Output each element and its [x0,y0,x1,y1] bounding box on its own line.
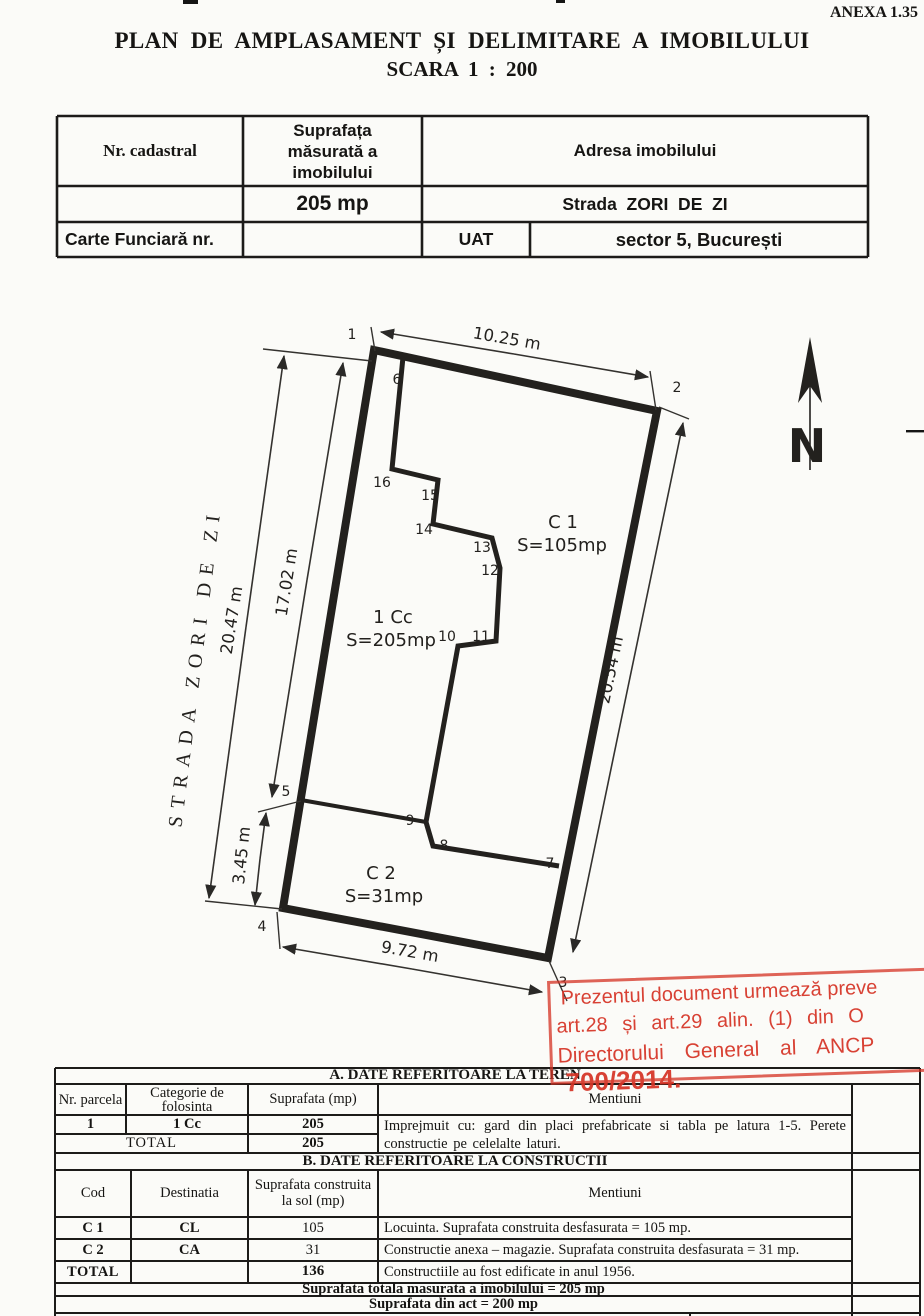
teren-header-categorie: Categorie de folosinta [126,1085,248,1114]
area-c1-value: S=105mp [517,535,607,556]
info-suprafata-label: Suprafața măsurată a imobilului [243,116,422,186]
anexa-label: ANEXA 1.35 [770,4,918,22]
constructii-header-mentiuni: Mentiuni [378,1170,852,1217]
page-title: PLAN DE AMPLASAMENT ȘI DELIMITARE A IMOB… [0,28,924,54]
teren-header-nr-parcela: Nr. parcela [55,1085,126,1114]
dim-17-02: 17.02 m [272,547,301,618]
point-label-13: 13 [473,540,491,556]
area-c1-code: C 1 [548,512,578,533]
area-1cc-value: S=205mp [346,630,436,651]
teren-row-nr: 1 [55,1115,126,1134]
point-label-9: 9 [406,813,415,829]
constructii-header-destinatia: Destinatia [131,1170,248,1217]
point-label-14: 14 [415,522,433,538]
building-c1-outline [392,357,559,866]
teren-total-label: TOTAL [55,1134,248,1153]
constructii-r1-supr: 105 [248,1217,378,1239]
area-c2-value: S=31mp [345,886,423,907]
area-c2-code: C 2 [366,863,396,884]
point-label-2: 2 [673,380,682,396]
dim-20-47: 20.47 m [217,585,246,656]
info-adresa-label: Adresa imobilului [422,116,868,186]
page-subtitle: SCARA 1 : 200 [0,57,924,81]
stamp-line-2: art.28 și art.29 alin. (1) din O [556,1005,864,1039]
info-uat-label: UAT [422,222,530,257]
constructii-r2-cod: C 2 [55,1239,131,1261]
teren-header-suprafata: Suprafata (mp) [248,1085,378,1114]
north-arrow: N [788,337,827,473]
dim-9-72: 9.72 m [380,937,440,966]
constructii-total-label: TOTAL [55,1261,131,1283]
constructii-total-mentiuni: Constructiile au fost edificate in anul … [384,1261,846,1283]
point-label-7: 7 [546,856,555,872]
point-label-1: 1 [348,327,357,343]
parcel-outline [283,350,657,958]
constructii-r1-ment: Locuinta. Suprafata construita desfasura… [384,1217,846,1239]
info-uat-value: sector 5, București [530,222,868,257]
north-label: N [788,419,827,473]
point-label-11: 11 [472,629,490,645]
teren-mentiuni-text: Imprejmuit cu: gard din placi prefabrica… [384,1117,846,1153]
constructii-header-cod: Cod [55,1170,131,1217]
teren-row-categorie: 1 Cc [126,1115,248,1134]
teren-total-value: 205 [248,1134,378,1153]
constructii-header-suprafata: Suprafata construita la sol (mp) [248,1170,378,1217]
dim-3-45: 3.45 m [229,826,254,886]
point-label-5: 5 [282,784,291,800]
point-label-6: 6 [393,372,402,388]
constructii-r1-cod: C 1 [55,1217,131,1239]
point-label-16: 16 [373,475,391,491]
info-adresa-value: Strada ZORI DE ZI [422,186,868,222]
stamp-line-4: 700/2014. [565,1063,682,1098]
dim-20-54: 20.54 m [594,634,627,705]
stamp-line-3: Directorului General al ANCP [557,1034,875,1069]
point-label-8: 8 [440,838,449,854]
info-nr-cadastral-label: Nr. cadastral [57,116,243,186]
constructii-r2-ment: Constructie anexa – magazie. Suprafata c… [384,1239,846,1261]
teren-row-suprafata: 205 [248,1115,378,1134]
info-suprafata-value: 205 mp [243,186,422,222]
constructii-r2-supr: 31 [248,1239,378,1261]
official-stamp: Prezentul document urmează preve art.28 … [547,967,924,1085]
point-label-4: 4 [258,919,267,935]
info-suprafata-label-text: Suprafața măsurată a imobilului [270,120,396,183]
summary-suprafata-masurata: Suprafata totala masurata a imobilului =… [55,1283,852,1296]
street-name-label: STRADA ZORI DE ZI [164,506,225,828]
point-label-15: 15 [421,488,439,504]
point-label-10: 10 [438,629,456,645]
area-1cc-code: 1 Cc [373,607,413,628]
constructii-table-title: B. DATE REFERITOARE LA CONSTRUCTII [55,1153,855,1170]
constructii-total-value: 136 [248,1261,378,1283]
constructii-r2-dest: CA [131,1239,248,1261]
constructii-r1-dest: CL [131,1217,248,1239]
info-carte-funciara-label: Carte Funciară nr. [57,222,251,257]
point-label-12: 12 [481,563,499,579]
cadastral-document-page: N STRADA ZORI DE ZI 1 2 3 4 5 6 7 8 9 10… [0,0,924,1316]
summary-suprafata-act: Suprafata din act = 200 mp [55,1296,852,1313]
